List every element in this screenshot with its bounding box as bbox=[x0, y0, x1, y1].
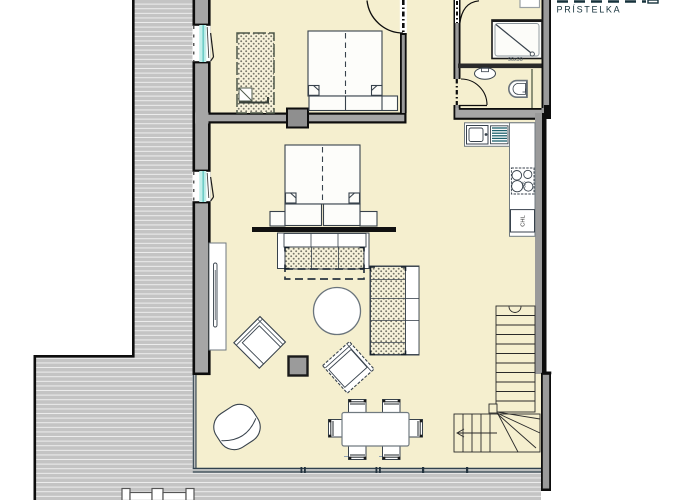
svg-text:90x90: 90x90 bbox=[508, 57, 523, 63]
svg-text:PRÍSTELKA: PRÍSTELKA bbox=[557, 4, 622, 14]
svg-text:3,5: 3,5 bbox=[522, 181, 527, 188]
svg-text:CHL: CHL bbox=[521, 214, 527, 226]
